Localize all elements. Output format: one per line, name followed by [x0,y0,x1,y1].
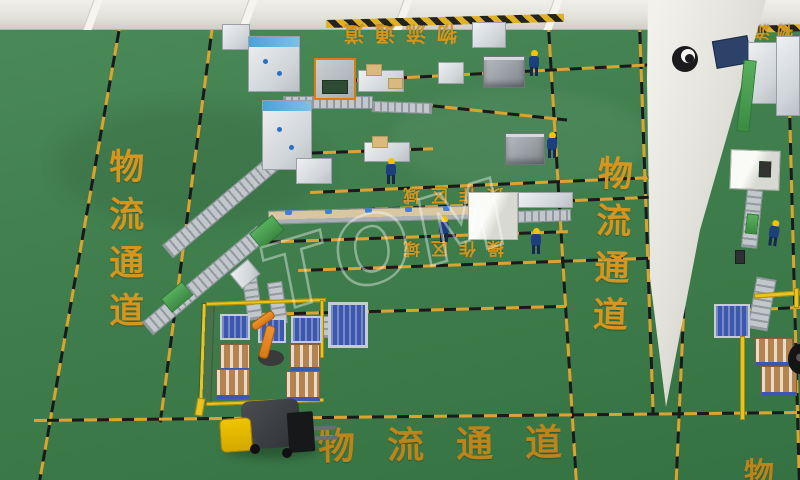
conveyor-product [325,209,332,214]
case-packer-machine-1 [248,36,300,92]
right-safety-fence-post [794,288,799,308]
forklift-wheel [250,444,260,454]
worker [546,132,558,158]
worker-legs [532,245,540,254]
right-belt-section [745,213,759,234]
inspection-machine-canopy [468,192,518,240]
palletized-load [216,369,250,399]
stretch-wrapper-machine [328,302,368,348]
machine-top-panel [249,37,299,47]
tote-bin-1 [483,56,525,88]
worker [385,158,397,184]
right-pedestal [735,250,745,264]
corridor-label-bottom: 物流通道 [318,422,595,469]
corridor-label-top: 物流通道 [333,22,457,45]
small-machine [438,62,464,84]
safety-fence-left [198,303,214,403]
right-machine-cube [729,149,780,191]
worker [528,50,540,76]
machine-indicator [263,59,268,64]
crescent-logo-highlight [681,49,695,63]
empty-pallet [220,314,250,340]
conveyor-product [405,207,412,212]
forklift-wheel [282,448,292,458]
crescent-logo-core [685,54,694,63]
pallet-stack [714,304,750,338]
case-erector-machine [222,24,250,50]
corridor-label-bottom-right-partial: 物 [744,458,774,480]
worker [438,216,450,242]
corridor-label-left: 物流通道 [103,148,143,340]
lane-marking-h8 [256,305,566,316]
carton-box [388,78,403,89]
conveyor-product [365,208,372,213]
conveyor-product [285,210,292,215]
worker-legs [548,149,556,158]
right-safety-fence-vertical [740,336,745,420]
machine-opening [759,161,772,177]
machine-indicator [289,145,294,150]
safety-fence-corner [194,397,205,416]
lane-marking-bottom-corridor [34,411,800,422]
safety-fence-top [206,298,326,306]
carton-box [372,136,388,148]
corridor-label-right: 物流通道 [586,154,633,343]
machine-green-panel [322,80,348,94]
worker-legs [440,233,448,242]
outfeed-conveyor [516,209,571,223]
worker-legs [387,175,395,184]
worker-legs [768,236,777,246]
machine-indicator [277,127,282,132]
right-lower-conveyor [748,277,777,332]
tote-bin-2 [505,133,545,165]
table-conveyor-2 [372,101,432,114]
lane-marking-right-corridor-left [545,0,578,480]
palletized-load [286,371,320,401]
factory-floor-scene: 物流通道 物流通道 物流通道 物流通道 物流通 操作区域 操作区域 物 [0,0,800,480]
end-of-line-machine [518,192,573,208]
palletized-load [290,344,320,371]
palletized-load [220,344,250,372]
small-machine [472,22,506,48]
cartoning-machine-orange [314,58,356,100]
worker [766,219,782,246]
empty-pallet [291,316,322,343]
machine-top-panel [263,101,311,111]
crescent-logo-icon [672,46,698,72]
conveyor-product [443,206,450,211]
carton-box [366,64,382,76]
right-machine-edge [776,36,800,116]
machine-indicator [277,71,282,76]
forklift-mast [287,411,316,453]
worker [530,228,542,254]
forklift-cab [219,417,253,453]
feeder-machine [296,158,332,184]
worker-legs [530,67,538,76]
